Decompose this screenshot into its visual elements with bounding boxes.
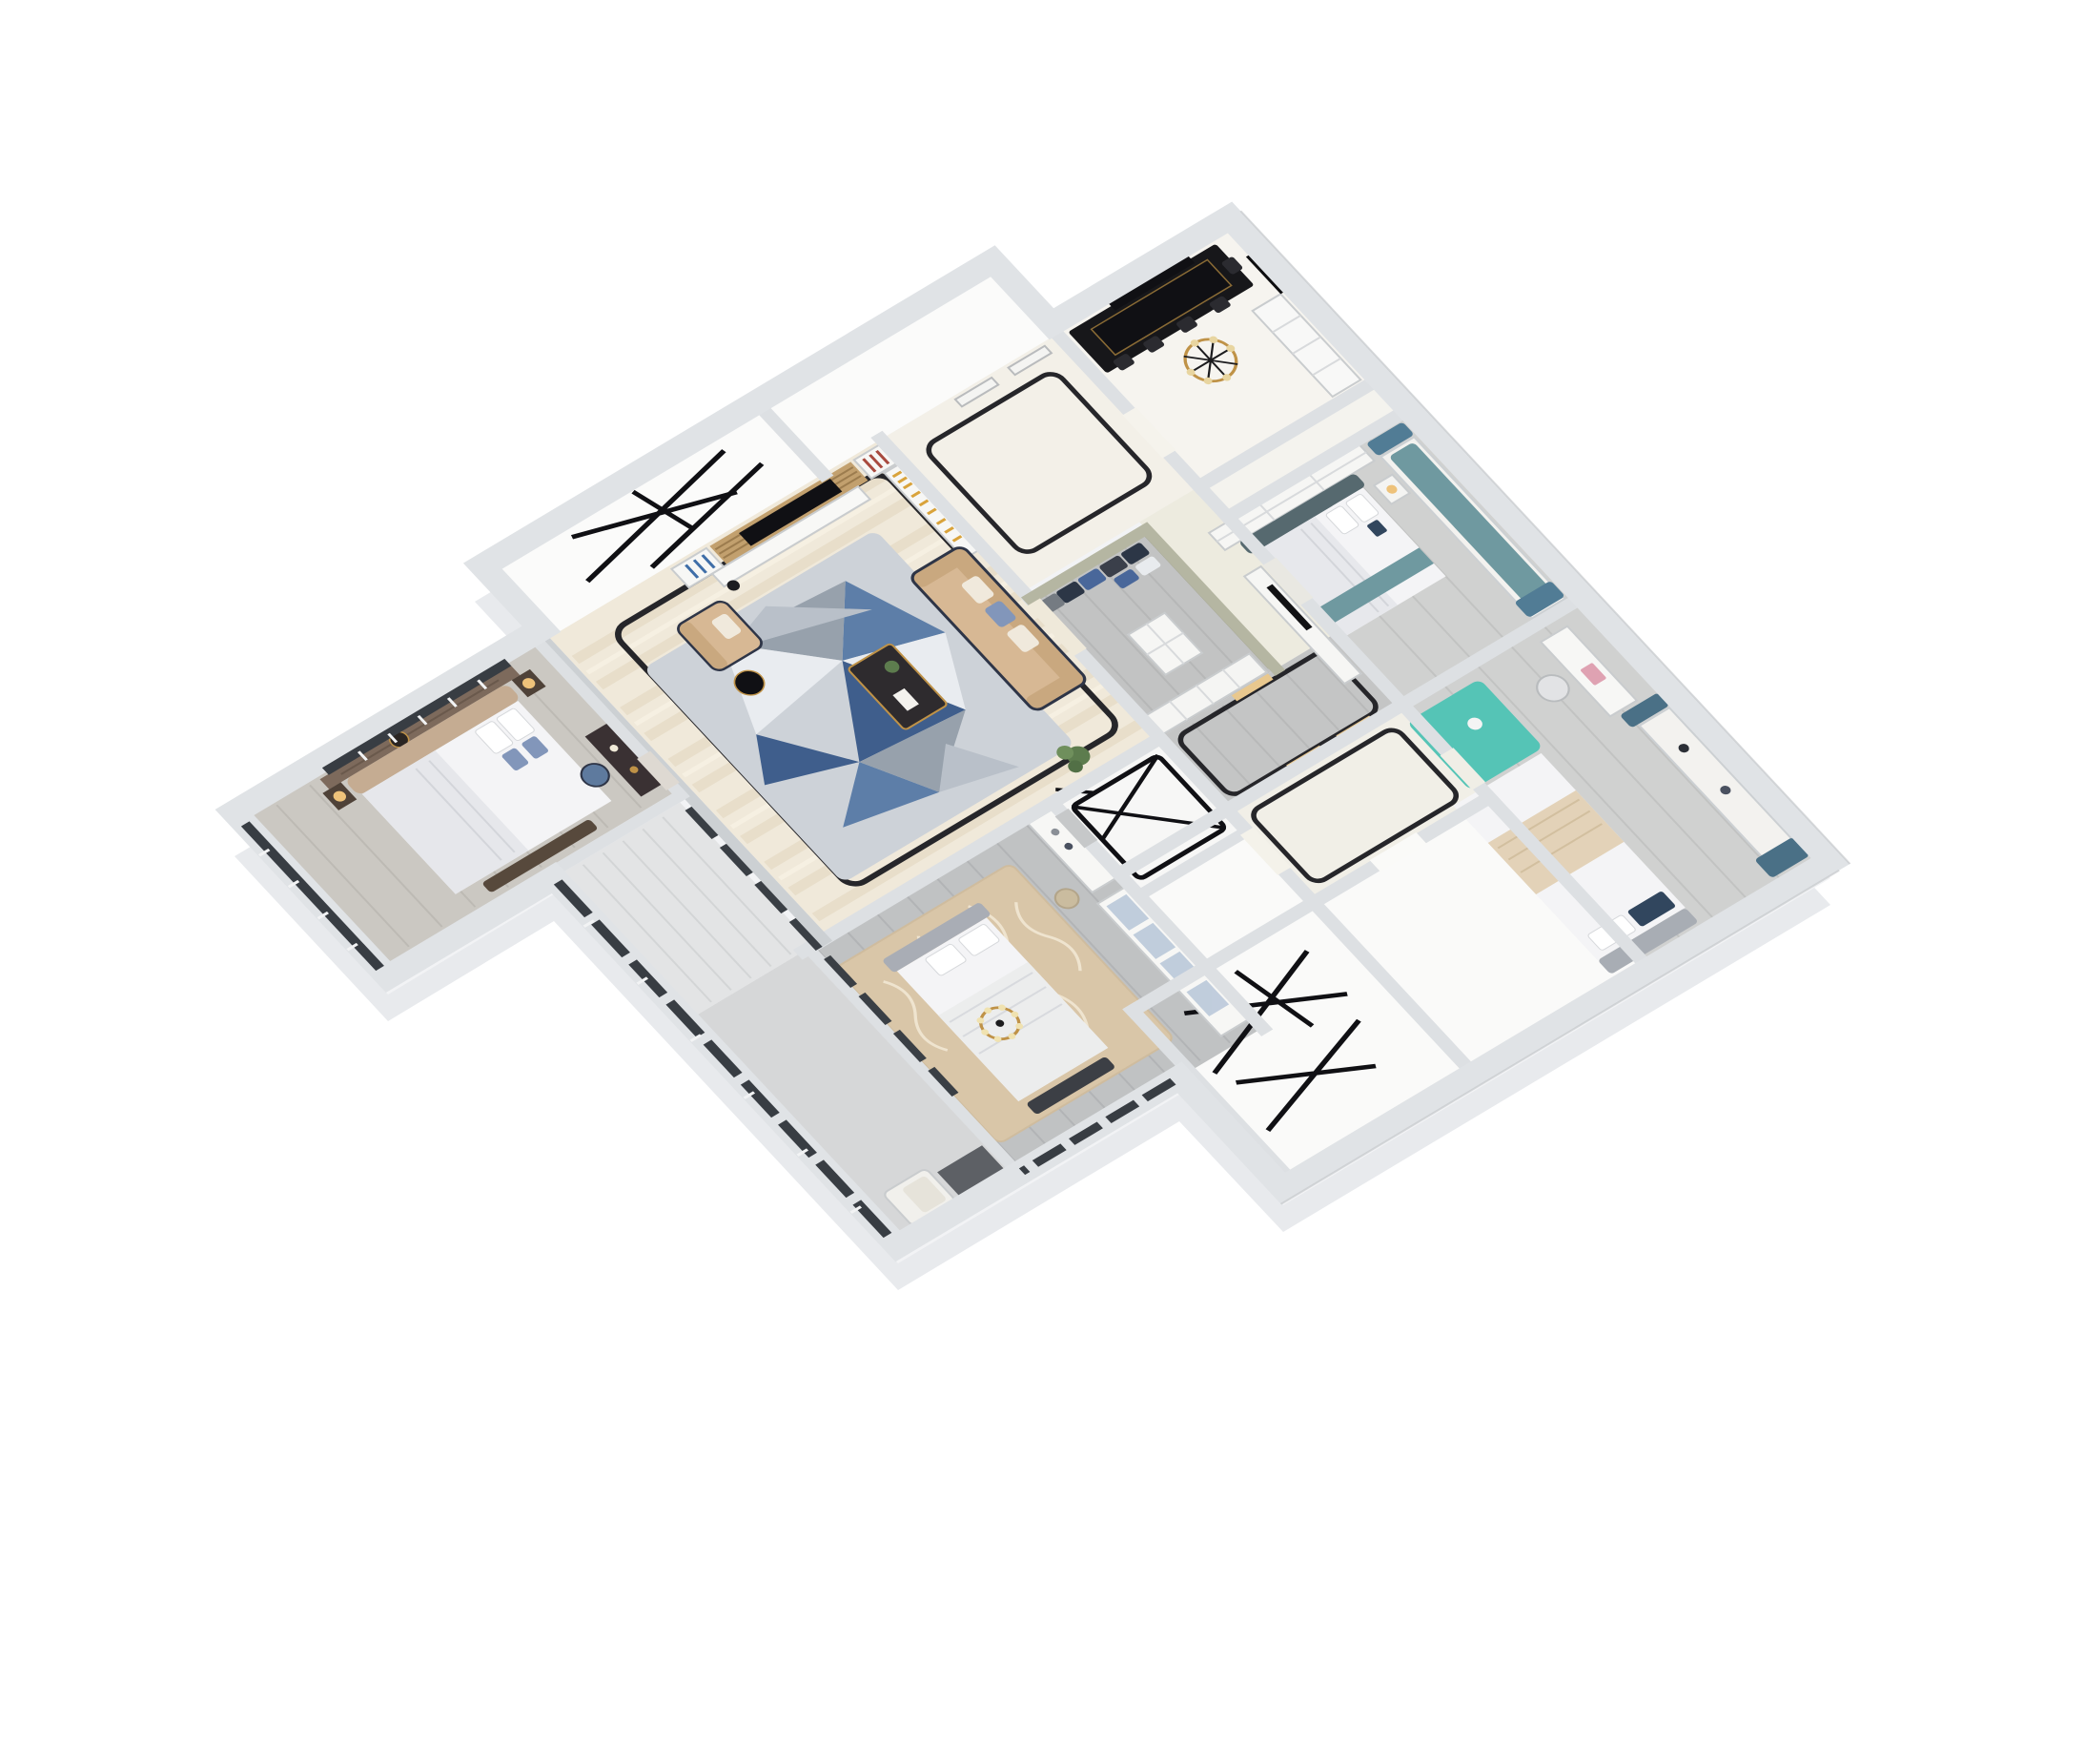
- floorplan: [166, 148, 1850, 1471]
- floorplan-render-page: [0, 0, 2085, 1764]
- floorplan-figure: [0, 0, 2085, 1764]
